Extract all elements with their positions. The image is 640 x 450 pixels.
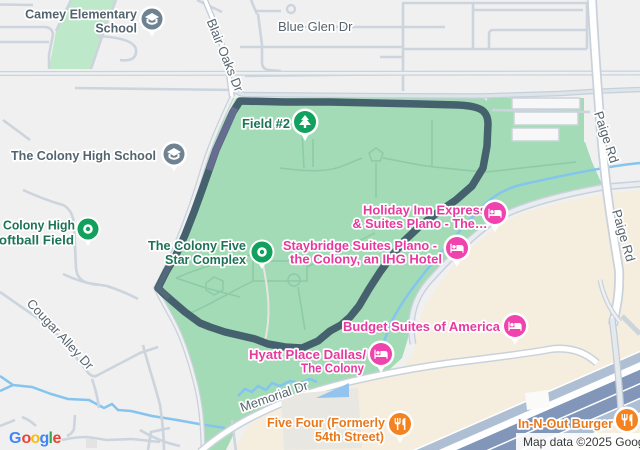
svg-text:the Colony, an IHG Hotel: the Colony, an IHG Hotel: [290, 253, 442, 267]
svg-text:Field #2: Field #2: [242, 117, 290, 131]
svg-text:& Suites Plano - The…: & Suites Plano - The…: [353, 217, 488, 231]
svg-text:e: e: [53, 430, 62, 447]
svg-text:The Colony: The Colony: [301, 362, 364, 376]
svg-text:Softball Field: Softball Field: [0, 234, 74, 248]
svg-text:Colony High: Colony High: [3, 219, 75, 233]
svg-text:Hyatt Place Dallas/: Hyatt Place Dallas/: [249, 348, 367, 362]
svg-text:School: School: [95, 22, 137, 36]
svg-text:Staybridge Suites Plano -: Staybridge Suites Plano -: [283, 239, 437, 253]
svg-text:G: G: [9, 430, 21, 447]
svg-text:In-N-Out Burger: In-N-Out Burger: [518, 417, 613, 431]
svg-text:The Colony High School: The Colony High School: [11, 149, 156, 163]
svg-text:The Colony Five: The Colony Five: [148, 239, 246, 253]
svg-text:Star Complex: Star Complex: [165, 253, 246, 267]
svg-text:Holiday Inn Express: Holiday Inn Express: [363, 204, 487, 218]
svg-text:Five Four (Formerly: Five Four (Formerly: [267, 416, 385, 430]
svg-text:Camey Elementary: Camey Elementary: [25, 8, 137, 22]
svg-text:Blue Glen Dr: Blue Glen Dr: [278, 19, 353, 34]
svg-text:Map data ©2025 Google: Map data ©2025 Google: [523, 435, 640, 449]
svg-text:Budget Suites of America: Budget Suites of America: [343, 320, 501, 334]
svg-text:54th Street): 54th Street): [315, 430, 384, 444]
